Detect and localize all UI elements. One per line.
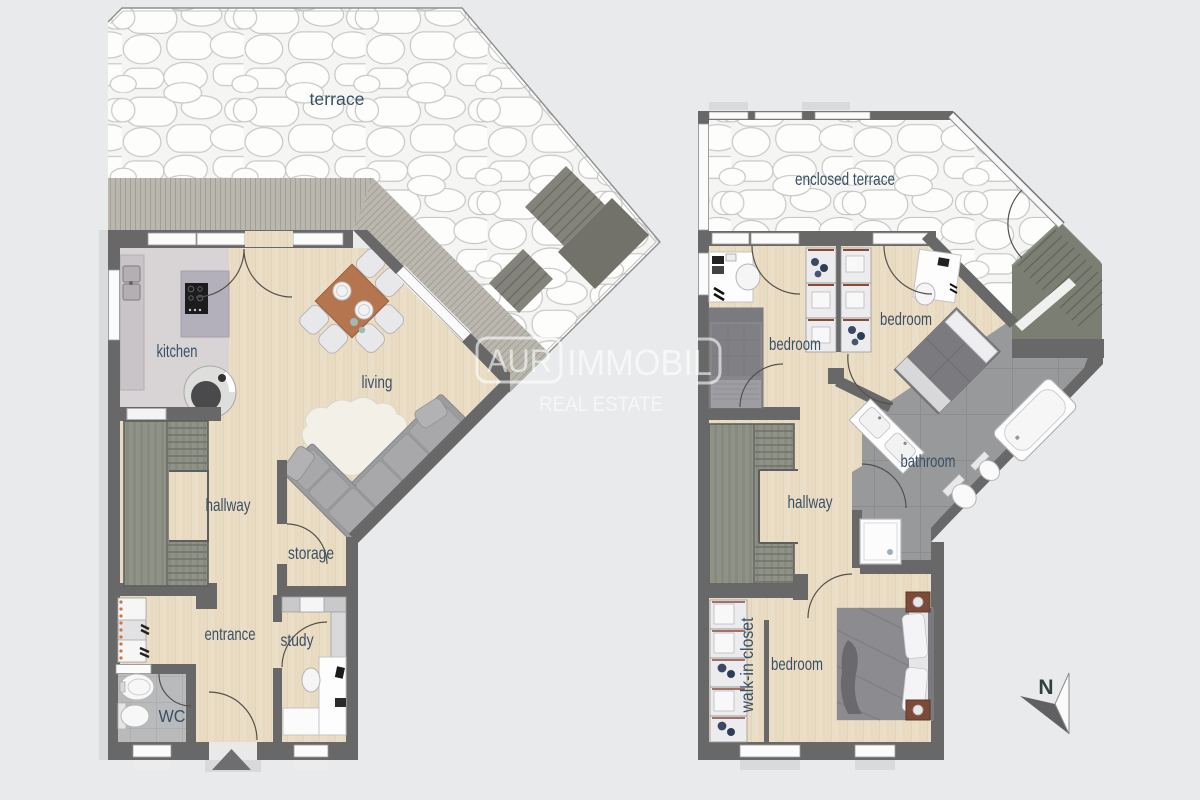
svg-text:AUR: AUR — [487, 343, 552, 379]
svg-text:REAL ESTATE: REAL ESTATE — [539, 393, 663, 416]
svg-text:living: living — [362, 372, 393, 392]
svg-text:WC: WC — [159, 706, 186, 726]
svg-text:bedroom: bedroom — [880, 309, 932, 329]
svg-text:entrance: entrance — [205, 624, 256, 644]
svg-text:bathroom: bathroom — [901, 451, 956, 471]
svg-text:storage: storage — [288, 543, 334, 563]
svg-text:bedroom: bedroom — [771, 654, 823, 674]
svg-text:terrace: terrace — [310, 89, 365, 109]
svg-text:kitchen: kitchen — [157, 341, 198, 361]
svg-text:IMMOBIL: IMMOBIL — [567, 342, 712, 383]
svg-text:bedroom: bedroom — [769, 334, 821, 354]
svg-text:hallway: hallway — [788, 492, 833, 512]
svg-text:enclosed terrace: enclosed terrace — [795, 169, 895, 189]
svg-text:walk-in closet: walk-in closet — [737, 617, 757, 713]
svg-text:hallway: hallway — [206, 495, 251, 515]
svg-text:study: study — [281, 630, 314, 650]
svg-text:N: N — [1038, 676, 1053, 699]
